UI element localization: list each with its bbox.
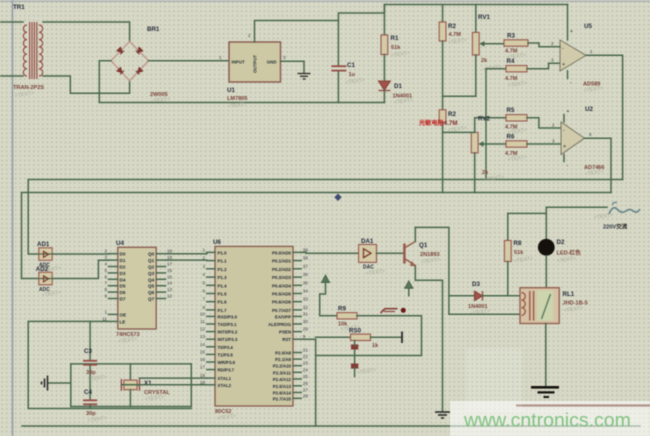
svg-text:34: 34 (303, 289, 309, 294)
svg-text:C4: C4 (84, 389, 92, 396)
svg-text:RV2: RV2 (478, 116, 490, 123)
svg-text:13: 13 (167, 287, 173, 292)
svg-text:1: 1 (202, 247, 205, 252)
svg-text:R3: R3 (507, 33, 515, 40)
svg-text:D6: D6 (120, 290, 126, 295)
svg-text:6: 6 (104, 274, 107, 279)
svg-text:6: 6 (202, 289, 205, 294)
svg-text:P1.1: P1.1 (218, 259, 228, 264)
svg-text:7: 7 (202, 297, 205, 302)
svg-text:U2: U2 (585, 106, 593, 113)
svg-text:13: 13 (200, 334, 206, 339)
svg-text:D4: D4 (120, 277, 126, 282)
svg-text:2: 2 (551, 41, 554, 46)
svg-text:35: 35 (303, 280, 309, 285)
svg-text:+: + (563, 144, 566, 150)
svg-text:1u: 1u (349, 72, 356, 78)
svg-text:+: + (567, 109, 570, 115)
svg-text:3: 3 (283, 55, 286, 60)
svg-text:220V交流: 220V交流 (603, 223, 628, 231)
svg-text:EA/VPP: EA/VPP (275, 314, 291, 319)
svg-text:4: 4 (202, 272, 205, 277)
svg-text:RS0: RS0 (349, 328, 362, 335)
svg-text:RXD/P3.0: RXD/P3.0 (218, 314, 238, 319)
svg-text:21: 21 (303, 348, 309, 353)
svg-text:D1: D1 (394, 83, 402, 90)
svg-text:2: 2 (552, 123, 555, 128)
svg-text:BR1: BR1 (147, 26, 160, 33)
svg-text:WR/P3.6: WR/P3.6 (218, 360, 236, 365)
svg-text:17: 17 (167, 262, 173, 267)
svg-text:T0/P3.4: T0/P3.4 (218, 345, 234, 350)
svg-text:33: 33 (303, 297, 309, 302)
svg-text:C3: C3 (84, 348, 92, 355)
svg-text:Q6: Q6 (148, 290, 155, 295)
svg-text:12: 12 (167, 294, 173, 299)
svg-text:P1.0: P1.0 (218, 250, 228, 255)
svg-text:P0.1/AD1: P0.1/AD1 (272, 259, 292, 264)
svg-text:27: 27 (303, 388, 309, 393)
svg-text:51k: 51k (514, 250, 524, 256)
svg-text:TR1: TR1 (13, 4, 25, 11)
svg-text:R9: R9 (338, 306, 346, 313)
svg-text:T1/P3.5: T1/P3.5 (218, 352, 234, 357)
svg-text:7: 7 (104, 281, 107, 286)
svg-text:-: - (563, 128, 565, 134)
svg-text:1k: 1k (372, 343, 379, 349)
svg-text:R5: R5 (507, 107, 515, 114)
svg-text:光敏电阻4.7M: 光敏电阻4.7M (418, 119, 458, 127)
svg-text:32: 32 (303, 305, 309, 310)
svg-text:51k: 51k (391, 45, 401, 51)
svg-text:LED-红色: LED-红色 (557, 249, 582, 257)
svg-text:R6: R6 (507, 134, 515, 141)
svg-text:P2.3/A11: P2.3/A11 (273, 370, 292, 375)
svg-text:RST: RST (282, 337, 291, 342)
svg-text:16: 16 (200, 357, 206, 362)
svg-text:38: 38 (303, 256, 309, 261)
svg-text:AD2: AD2 (36, 266, 49, 273)
svg-text:PSEN: PSEN (279, 330, 291, 335)
svg-text:+: + (570, 29, 573, 35)
svg-text:25: 25 (303, 374, 309, 379)
svg-text:10: 10 (200, 311, 206, 316)
svg-text:31: 31 (303, 311, 309, 316)
svg-text:P2.7/A15: P2.7/A15 (273, 396, 292, 401)
svg-text:36: 36 (303, 272, 309, 277)
svg-text:D5: D5 (120, 284, 126, 289)
svg-text:3: 3 (552, 139, 555, 144)
svg-text:D7: D7 (120, 297, 126, 302)
svg-text:3: 3 (104, 255, 107, 260)
svg-text:U4: U4 (116, 240, 124, 247)
svg-text:XTAL1: XTAL1 (218, 376, 232, 381)
svg-text:DA1: DA1 (361, 238, 374, 245)
svg-text:Q1: Q1 (148, 258, 155, 263)
svg-text:P0.4/AD4: P0.4/AD4 (272, 283, 292, 288)
svg-text:23: 23 (303, 361, 309, 366)
svg-text:INT0/P3.2: INT0/P3.2 (218, 330, 238, 335)
svg-text:D2: D2 (120, 265, 126, 270)
svg-text:2k: 2k (482, 170, 489, 176)
svg-text:P0.6/AD6: P0.6/AD6 (272, 300, 292, 305)
svg-text:9: 9 (104, 294, 107, 299)
svg-text:2: 2 (104, 249, 107, 254)
svg-text:www.cntronics.com: www.cntronics.com (463, 410, 631, 432)
svg-text:GND: GND (267, 60, 277, 65)
svg-text:P0.2/AD2: P0.2/AD2 (272, 267, 292, 272)
svg-text:P1.7: P1.7 (218, 308, 228, 313)
svg-text:30: 30 (303, 319, 309, 324)
svg-text:P2.2/A10: P2.2/A10 (273, 364, 292, 369)
svg-text:2: 2 (202, 256, 205, 261)
svg-text:U5: U5 (584, 23, 592, 30)
svg-text:P1.5: P1.5 (218, 292, 228, 297)
svg-text:TXD/P3.1: TXD/P3.1 (218, 322, 238, 327)
svg-text:P2.0/A8: P2.0/A8 (275, 351, 291, 356)
svg-text:D0: D0 (120, 252, 126, 257)
svg-text:Q2: Q2 (148, 265, 155, 270)
svg-text:U6: U6 (213, 239, 221, 246)
svg-text:XTAL2: XTAL2 (218, 383, 232, 388)
svg-text:16: 16 (167, 268, 173, 273)
svg-text:X1: X1 (144, 380, 152, 387)
svg-text:11: 11 (200, 319, 205, 324)
svg-text:P0.0/AD0: P0.0/AD0 (272, 250, 292, 255)
svg-text:R4: R4 (507, 58, 515, 65)
svg-text:4: 4 (104, 262, 107, 267)
svg-text:D2: D2 (557, 239, 565, 246)
svg-text:OE: OE (120, 313, 127, 318)
svg-text:Q3: Q3 (148, 271, 155, 276)
svg-text:P1.4: P1.4 (218, 283, 228, 288)
svg-text:P0.7/AD7: P0.7/AD7 (272, 308, 292, 313)
svg-text:C1: C1 (347, 62, 355, 69)
svg-text:Q1: Q1 (419, 242, 428, 249)
svg-text:P0.5/AD5: P0.5/AD5 (272, 292, 292, 297)
svg-text:3: 3 (551, 58, 554, 63)
svg-text:-: - (562, 46, 564, 52)
svg-text:26: 26 (303, 381, 309, 386)
svg-text:P2.1/A9: P2.1/A9 (275, 357, 291, 362)
svg-text:D3: D3 (120, 271, 126, 276)
svg-text:3: 3 (202, 264, 205, 269)
svg-text:R8: R8 (514, 240, 522, 247)
svg-text:D3: D3 (472, 281, 480, 288)
svg-text:D1: D1 (120, 258, 126, 263)
svg-text:P2.5/A13: P2.5/A13 (273, 384, 292, 389)
svg-text:AD1: AD1 (37, 241, 50, 248)
svg-text:15: 15 (167, 274, 173, 279)
svg-text:5: 5 (202, 280, 205, 285)
svg-text:14: 14 (200, 342, 206, 347)
svg-text:P1.2: P1.2 (218, 267, 228, 272)
svg-text:P1.3: P1.3 (218, 275, 228, 280)
svg-text:2k: 2k (481, 58, 488, 64)
svg-text:R2: R2 (448, 111, 456, 118)
svg-text:8: 8 (202, 305, 205, 310)
svg-text:24: 24 (303, 367, 309, 372)
svg-text:29: 29 (303, 327, 309, 332)
svg-text:28: 28 (303, 393, 309, 398)
svg-text:1: 1 (104, 309, 107, 314)
svg-text:RD/P3.7: RD/P3.7 (218, 368, 235, 373)
svg-text:LE: LE (120, 320, 126, 325)
svg-text:1: 1 (219, 55, 222, 60)
svg-text:INT1/P3.3: INT1/P3.3 (218, 337, 238, 342)
svg-text:22: 22 (303, 354, 309, 359)
svg-text:15: 15 (200, 349, 206, 354)
svg-text:1: 1 (590, 49, 593, 54)
svg-text:Q0: Q0 (148, 252, 155, 257)
svg-text:+: + (562, 62, 565, 68)
svg-text:6: 6 (589, 132, 592, 137)
svg-text:P2.4/A12: P2.4/A12 (273, 377, 292, 382)
svg-text:INPUT: INPUT (232, 60, 245, 65)
svg-text:RL1: RL1 (563, 291, 575, 298)
svg-text:U1: U1 (227, 87, 235, 94)
svg-text:2: 2 (248, 33, 251, 38)
svg-text:Q5: Q5 (148, 284, 155, 289)
svg-text:OUTPUT: OUTPUT (253, 55, 258, 73)
svg-text:P1.6: P1.6 (218, 300, 228, 305)
svg-text:R1: R1 (391, 35, 399, 42)
svg-text:12: 12 (200, 327, 206, 332)
svg-text:Q7: Q7 (148, 297, 155, 302)
svg-text:4.7M: 4.7M (449, 32, 462, 38)
svg-text:37: 37 (303, 264, 309, 269)
svg-text:14: 14 (167, 281, 173, 286)
svg-text:ALE/PROG: ALE/PROG (268, 322, 292, 327)
svg-text:5: 5 (104, 268, 107, 273)
svg-text:RV1: RV1 (478, 14, 490, 21)
svg-text:17: 17 (200, 365, 206, 370)
svg-text:R2: R2 (448, 23, 456, 30)
svg-text:P2.6/A14: P2.6/A14 (273, 391, 292, 396)
svg-text:P0.3/AD3: P0.3/AD3 (272, 275, 292, 280)
svg-text:8: 8 (104, 287, 107, 292)
svg-text:Q4: Q4 (148, 277, 155, 282)
